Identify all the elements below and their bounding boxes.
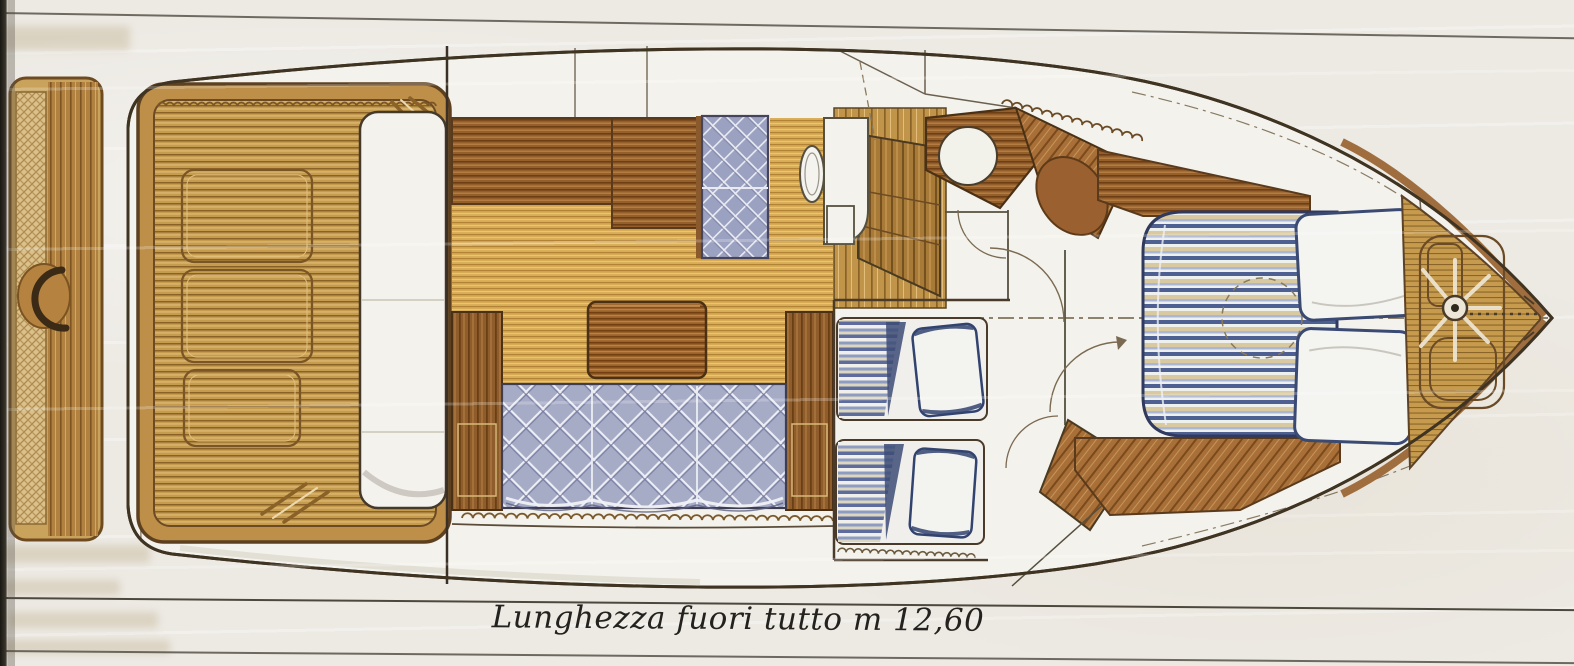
bed-pillow — [1294, 328, 1414, 444]
galley-sideboard — [612, 118, 698, 228]
helm-bench — [360, 112, 446, 508]
page-edge-shadow — [0, 0, 8, 666]
sink-circle — [939, 127, 997, 185]
galley-appliance — [827, 206, 854, 244]
page: Lunghezza fuori tutto m 12,60 — [0, 0, 1574, 666]
sofa-cabinet-left — [452, 312, 502, 510]
sofa-cabinet-right — [786, 312, 833, 510]
guest-berth — [836, 440, 984, 544]
caption: Lunghezza fuori tutto m 12,60 — [488, 599, 988, 638]
boat-plan-illustration — [0, 0, 1574, 666]
cockpit — [138, 84, 450, 542]
swim-platform — [10, 78, 102, 540]
pillow — [912, 323, 985, 417]
guest-berth — [837, 318, 987, 420]
pillow — [909, 448, 977, 538]
salon-table — [588, 302, 706, 378]
salon-sofa — [502, 384, 786, 512]
page-edge-shadow — [8, 0, 15, 666]
oven-door — [800, 146, 824, 202]
bed-pillow — [1295, 209, 1418, 321]
